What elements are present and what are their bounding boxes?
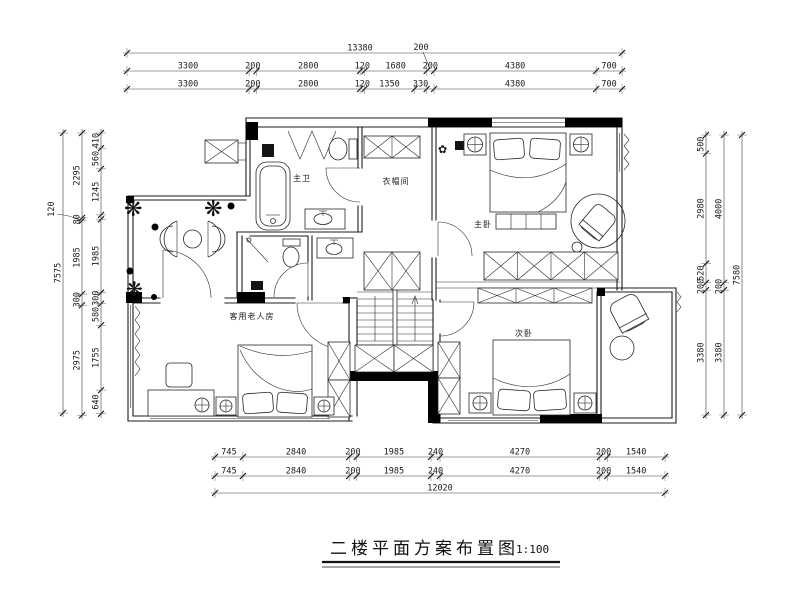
floor-plan-drawing: ✿ ❋ ❋ ❋: [0, 0, 800, 600]
master-bath-door: [326, 168, 360, 202]
room-label-master-bath: 主卫: [293, 173, 311, 183]
balcony-furniture: [608, 292, 650, 360]
dim-label: 1245: [92, 182, 102, 202]
dim-label: 1755: [92, 347, 102, 367]
dim-label: 2295: [73, 165, 83, 185]
room-label-cloakroom: 衣帽间: [383, 176, 410, 186]
hall-vanity: [317, 238, 353, 258]
drawing-scale: 1:100: [516, 543, 549, 556]
drawing-title: 二楼平面方案布置图: [330, 539, 519, 559]
room-label-second-bedroom: 次卧: [515, 328, 533, 338]
dim-label: 240: [428, 467, 443, 477]
dim-label: 7580: [733, 265, 743, 285]
dim-label: 2800: [298, 80, 318, 90]
stool-icon: [455, 141, 464, 150]
dim-label: 1350: [379, 80, 399, 90]
dim-label: 580: [92, 307, 102, 322]
staircase: [357, 290, 433, 345]
second-bedroom-furniture: [493, 340, 570, 415]
master-bath-fixtures: [256, 138, 357, 230]
dim-label: 4270: [510, 467, 530, 477]
small-bath-door: [274, 263, 308, 297]
dim-label: 2800: [298, 62, 318, 72]
terrace-furniture: ❋ ❋ ❋: [124, 197, 235, 301]
plant-icon: ❋: [126, 277, 143, 301]
balcony-chair: [608, 292, 650, 334]
dim-label-200-leader: 200: [413, 43, 428, 53]
flower-icon: ✿: [438, 143, 447, 156]
dim-label: 2980: [697, 198, 707, 218]
room-label-master-bedroom: 主卧: [474, 219, 492, 229]
washer-icon: [262, 144, 274, 157]
plant-icon: ❋: [204, 197, 222, 222]
dim-label: 200: [697, 279, 707, 294]
dim-label: 745: [221, 467, 236, 477]
dim-label: 120: [355, 62, 370, 72]
dim-label: 1680: [385, 62, 405, 72]
room-label-guest-room: 客用老人房: [230, 311, 275, 321]
plant-icon: ❋: [124, 197, 142, 222]
dim-label: 80: [73, 214, 83, 224]
title-block: 二楼平面方案布置图 1:100: [322, 539, 560, 567]
bath-vanity: [305, 209, 345, 229]
dim-label: 3300: [178, 62, 198, 72]
dim-label-120-leader: 120: [47, 201, 57, 216]
dim-label: 745: [221, 448, 236, 458]
dim-label: 240: [428, 448, 443, 458]
dim-label: 120: [355, 80, 370, 90]
dim-label: 200: [596, 467, 611, 477]
dim-label: 1540: [626, 467, 646, 477]
floor-drain-icon: [251, 281, 263, 290]
dim-label: 200: [245, 62, 260, 72]
detached-dims: 200 120: [47, 43, 430, 220]
dim-label: 200: [345, 448, 360, 458]
terrace-door: [163, 250, 211, 298]
dim-label: 410: [92, 133, 102, 148]
floor-plan-sheet: ✿ ❋ ❋ ❋: [0, 0, 800, 600]
dim-label: 2840: [286, 467, 306, 477]
dim-label: 3380: [697, 342, 707, 362]
dim-label: 1985: [92, 246, 102, 266]
dim-label: 12020: [427, 484, 453, 494]
dim-label: 4000: [715, 199, 725, 219]
toilet-bowl: [329, 138, 347, 160]
dim-label: 3300: [178, 80, 198, 90]
master-bedroom-door: [438, 222, 472, 256]
dim-label: 500: [697, 137, 707, 152]
dim-label: 200: [345, 467, 360, 477]
chair: [166, 363, 192, 387]
dim-label: 1985: [384, 448, 404, 458]
dim-label: 520: [697, 265, 707, 280]
dim-label: 7575: [54, 263, 64, 283]
dim-label: 13380: [347, 44, 373, 54]
dim-label: 1985: [384, 467, 404, 477]
small-bath-fixtures: [246, 238, 300, 290]
desk: [148, 390, 214, 416]
dim-label: 700: [601, 80, 616, 90]
dim-label: 4270: [510, 448, 530, 458]
dim-label: 300: [73, 292, 83, 307]
dim-label: 330: [413, 80, 428, 90]
round-table: [610, 336, 634, 360]
dim-label: 2975: [73, 350, 83, 370]
dim-label: 700: [601, 62, 616, 72]
dim-label: 200: [423, 62, 438, 72]
dim-label: 300: [92, 291, 102, 306]
dim-label: 1985: [73, 247, 83, 267]
desk-chair: [578, 202, 617, 242]
dim-label: 200: [715, 279, 725, 294]
dim-label: 4380: [505, 62, 525, 72]
second-bedroom-door: [440, 302, 474, 336]
toilet-bowl: [283, 247, 299, 267]
dim-label: 560: [92, 151, 102, 166]
dim-label: 2840: [286, 448, 306, 458]
dim-label: 3380: [715, 342, 725, 362]
dim-label: 4380: [505, 80, 525, 90]
dim-label: 1540: [626, 448, 646, 458]
toilet-tank: [349, 139, 357, 159]
dim-label: 640: [92, 394, 102, 409]
shower-folding-door: [288, 131, 336, 159]
round-table: [184, 230, 202, 248]
dim-label: 200: [245, 80, 260, 90]
dim-label: 200: [596, 448, 611, 458]
